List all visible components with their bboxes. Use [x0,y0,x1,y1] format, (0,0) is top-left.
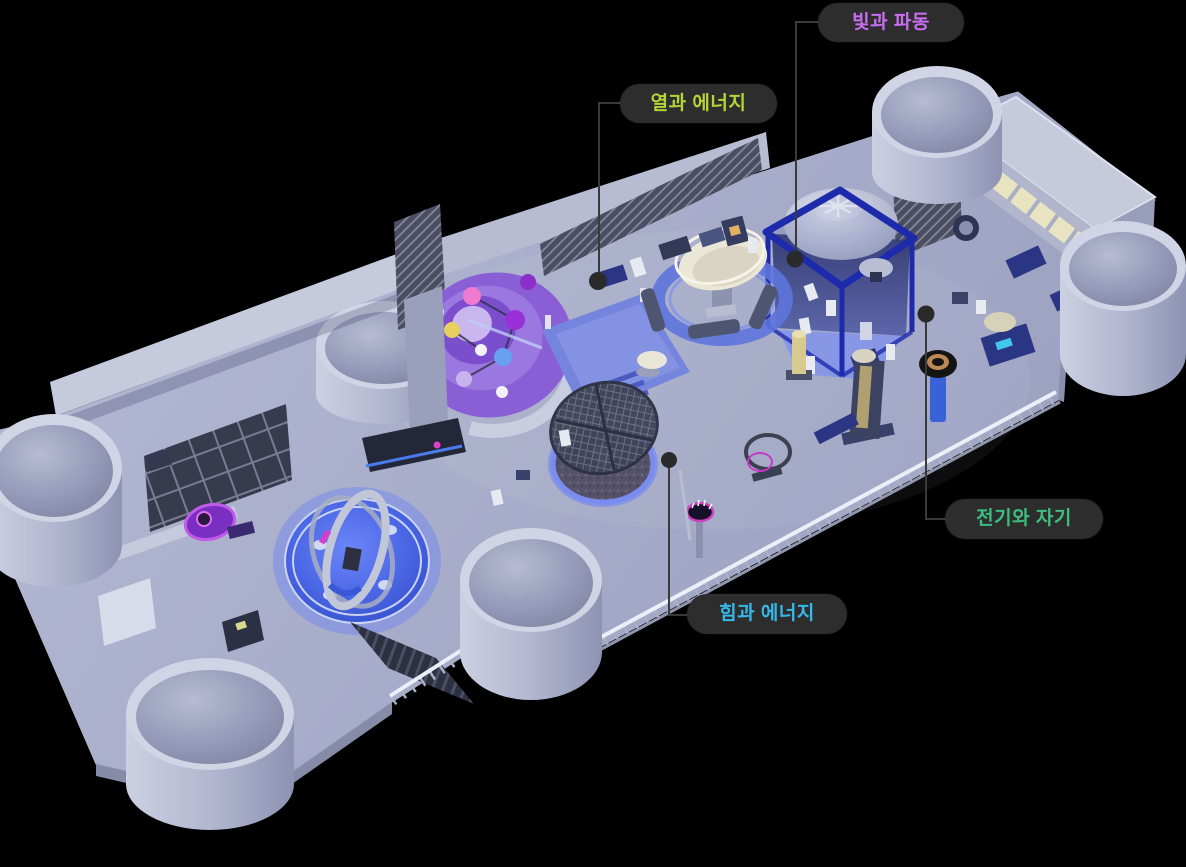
zoetrope-hole [932,358,944,366]
zone-marker-light-and-waves [787,251,804,268]
molecule-ball-violet [520,274,536,290]
exhibit-box [952,292,968,304]
cylindrical-tower-topright [872,66,1002,204]
molecule-ball-blue [494,348,512,366]
cylindrical-tower-bottommid [460,528,602,700]
cylindrical-tower-right [1060,221,1186,396]
table-base [870,272,882,282]
ladder-tower-top [852,349,876,363]
zone-marker-electricity-and-magnetism [918,306,935,323]
zoetrope-post [930,376,946,422]
mini-dish [637,351,667,369]
molecule-ball-pink [463,287,481,305]
zone-label-force-and-energy[interactable]: 힘과 에너지 [687,594,847,634]
zone-label-electricity-and-magnetism[interactable]: 전기와 자기 [945,499,1103,539]
molecule-ball-purple [505,310,525,330]
pavilion-stand [886,344,895,360]
museum-floor-map-scene: 빛과 파동 열과 에너지 전기와 자기 힘과 에너지 [0,0,1186,867]
exhibit-stand [748,238,757,253]
rail-post [545,315,551,329]
molecule-node [475,344,487,356]
amber-column [792,334,806,374]
gyro-ring-platform [279,486,435,629]
zone-label-heat-and-energy[interactable]: 열과 에너지 [620,84,777,123]
pump-pole [696,518,703,558]
cylindrical-tower-left [0,414,122,587]
zone-marker-force-and-energy [661,452,677,468]
wheel-hub [959,221,973,235]
exhibit-box [516,470,530,480]
exhibit-stand [976,300,986,314]
arcade-dome [984,312,1016,332]
room-side-wall [404,286,448,434]
crown-exhibit [687,503,713,521]
molecule-ball-yellow [444,322,460,338]
exhibit-stand [826,300,836,316]
museum-floor-map [0,0,1186,867]
purple-exhibit-dial [197,512,211,526]
zone-marker-heat-and-energy [589,272,607,290]
desk-accent [434,442,441,449]
amber-column-top [792,330,806,338]
molecule-ball-lavender [456,371,472,387]
pavilion-kiosk [860,322,872,340]
zone-label-light-and-waves[interactable]: 빛과 파동 [818,3,964,42]
cylindrical-tower-bottomleft [126,658,294,830]
molecule-node [496,386,508,398]
